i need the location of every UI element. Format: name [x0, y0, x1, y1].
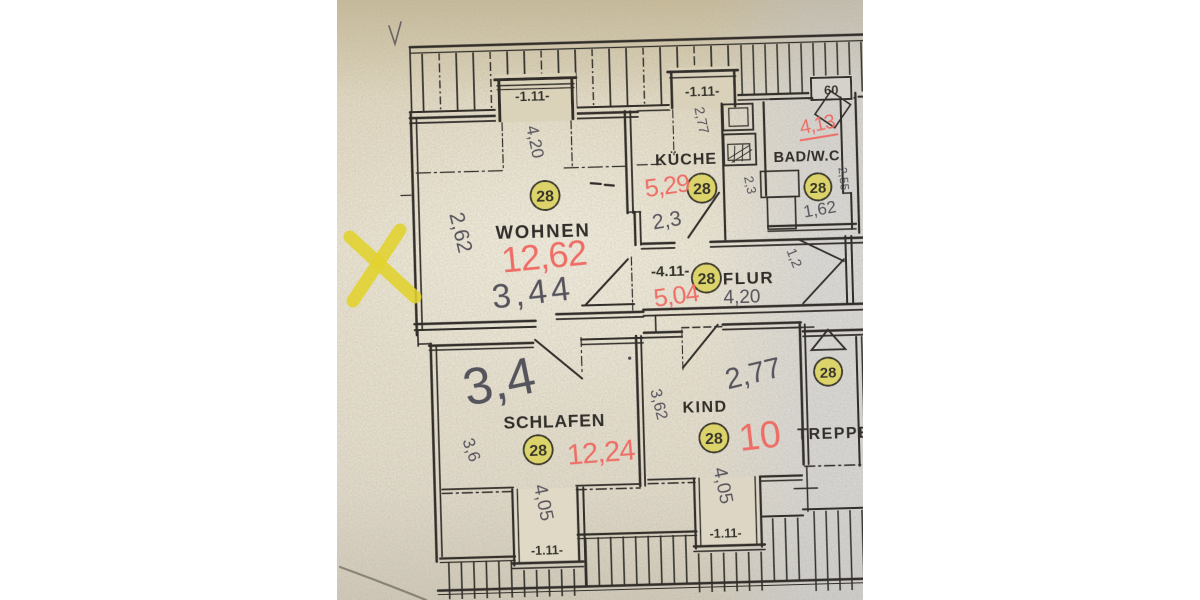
svg-text:5,04: 5,04: [652, 279, 701, 313]
svg-text:28: 28: [809, 180, 826, 197]
svg-text:SCHLAFEN: SCHLAFEN: [503, 410, 605, 433]
svg-text:2,55: 2,55: [835, 166, 852, 191]
svg-text:BAD/W.C.: BAD/W.C.: [773, 148, 844, 166]
svg-text:-1.11-: -1.11-: [515, 88, 550, 104]
svg-text:FLUR: FLUR: [723, 268, 775, 288]
svg-text:-4.11-: -4.11-: [651, 262, 690, 280]
svg-text:TREPPE: TREPPE: [797, 425, 870, 444]
svg-text:-1.11-: -1.11-: [685, 84, 720, 100]
svg-text:28: 28: [529, 443, 547, 460]
svg-text:28: 28: [693, 181, 711, 198]
svg-text:-1.11-: -1.11-: [709, 526, 741, 541]
svg-text:KIND: KIND: [682, 398, 728, 416]
svg-text:12,62: 12,62: [500, 232, 589, 281]
svg-text:28: 28: [705, 431, 723, 448]
svg-text:4,20: 4,20: [723, 287, 761, 309]
svg-text:28: 28: [820, 364, 837, 381]
svg-text:-1.11-: -1.11-: [531, 543, 563, 558]
svg-text:2,3: 2,3: [651, 207, 684, 235]
svg-text:28: 28: [697, 271, 715, 288]
svg-text:12,24: 12,24: [566, 434, 637, 471]
svg-text:28: 28: [536, 188, 554, 205]
svg-text:5,29: 5,29: [643, 169, 691, 203]
svg-text:10: 10: [736, 413, 783, 460]
svg-text:KÜCHE: KÜCHE: [655, 149, 717, 170]
